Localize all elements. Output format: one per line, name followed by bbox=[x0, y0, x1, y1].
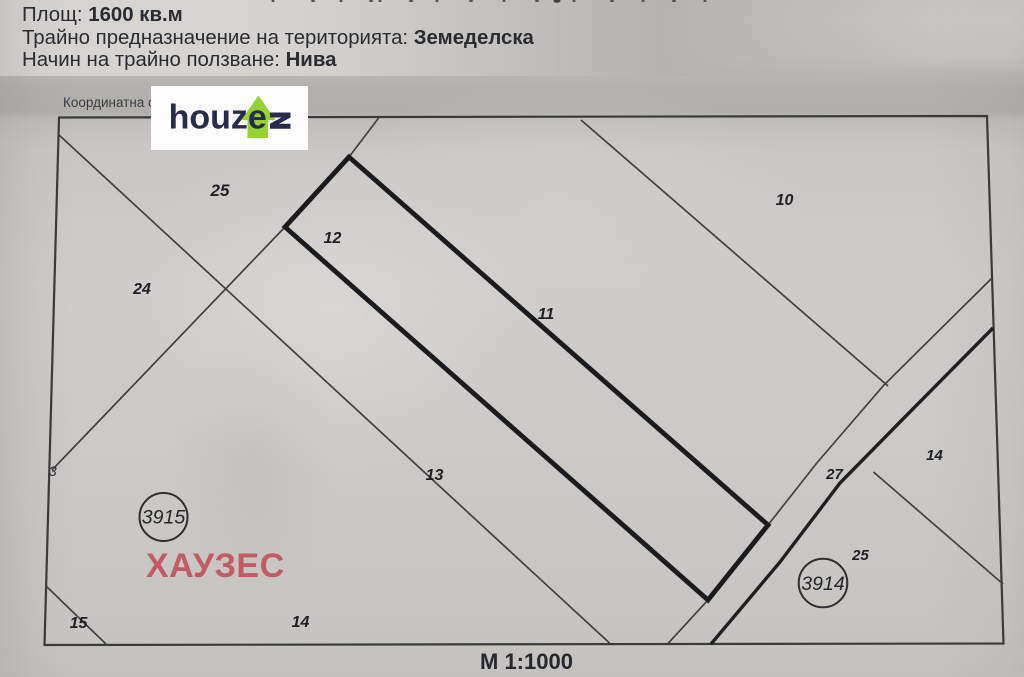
svg-text:25: 25 bbox=[851, 547, 869, 564]
svg-text:13: 13 bbox=[426, 467, 444, 484]
svg-text:12: 12 bbox=[324, 230, 342, 247]
svg-text:10: 10 bbox=[776, 192, 794, 209]
svg-text:М 1:1000: М 1:1000 bbox=[480, 649, 573, 674]
svg-text:ХАУЗЕС: ХАУЗЕС bbox=[146, 547, 285, 585]
svg-text:27: 27 bbox=[825, 466, 843, 483]
svg-text:24: 24 bbox=[132, 281, 151, 298]
svg-text:houze: houze bbox=[169, 99, 267, 137]
svg-text:25: 25 bbox=[210, 181, 230, 200]
svg-text:3915: 3915 bbox=[142, 507, 186, 529]
svg-text:3: 3 bbox=[49, 463, 57, 479]
svg-text:15: 15 bbox=[70, 615, 89, 632]
svg-text:3914: 3914 bbox=[801, 573, 845, 595]
svg-text:14: 14 bbox=[292, 614, 310, 631]
svg-text:11: 11 bbox=[538, 306, 555, 323]
svg-text:14: 14 bbox=[926, 447, 943, 464]
